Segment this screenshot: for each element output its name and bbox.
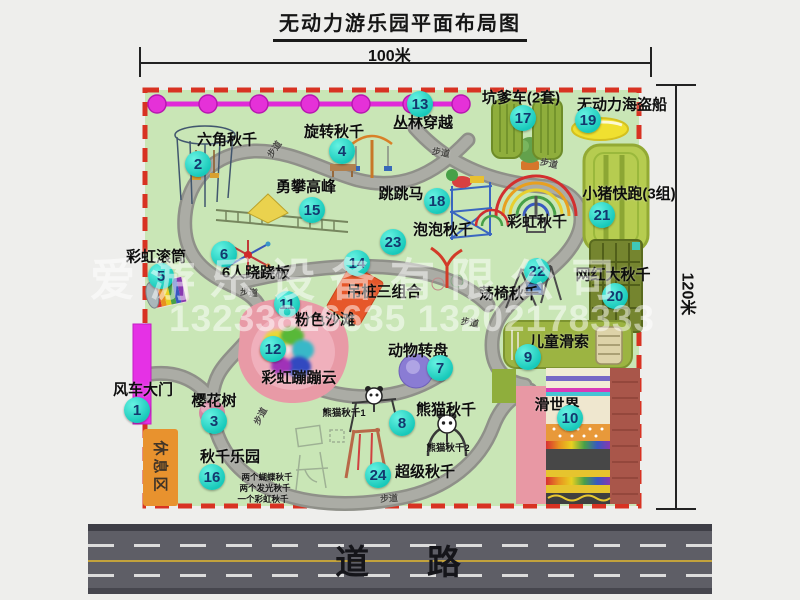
pirate-ship-icon xyxy=(572,118,628,140)
width-dimension-tick-right xyxy=(650,47,652,77)
width-dimension-tick-left xyxy=(139,47,141,77)
title-row: 无动力游乐园平面布局图 xyxy=(0,7,800,42)
height-dimension-tick-top xyxy=(656,84,696,86)
kids-zipline-icon xyxy=(504,321,632,368)
height-dimension-tick-bottom xyxy=(656,508,696,510)
width-dimension-label: 100米 xyxy=(368,42,411,66)
piggy-run-icon xyxy=(584,145,648,251)
rest-area-label: 休息区 xyxy=(150,440,171,494)
page-title: 无动力游乐园平面布局图 xyxy=(273,7,527,42)
rest-area-box: 休息区 xyxy=(143,429,178,506)
playground-layout-map: 无动力游乐园平面布局图 100米 120米 xyxy=(0,0,800,600)
animal-turntable-icon xyxy=(399,354,433,388)
big-swing-icon xyxy=(590,240,642,332)
windmill-gate-icon xyxy=(133,324,151,424)
height-dimension-label: 120米 xyxy=(677,273,701,316)
